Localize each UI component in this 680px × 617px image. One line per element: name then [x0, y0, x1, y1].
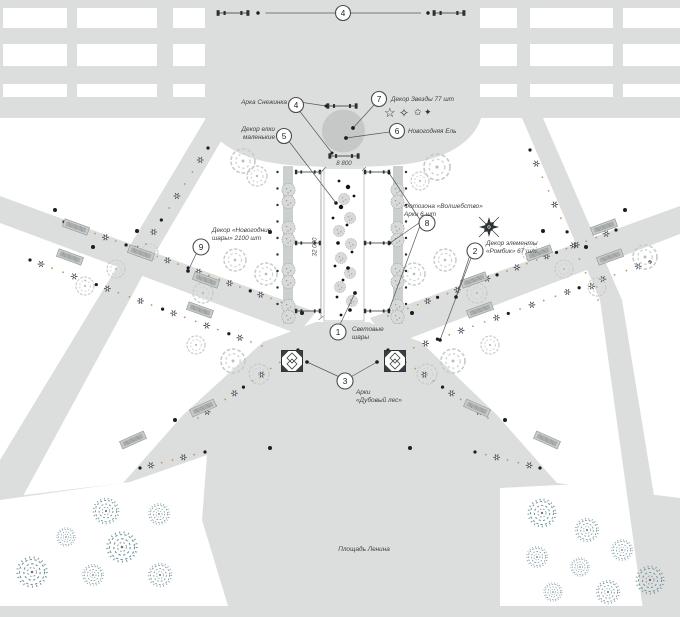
boulevard-tree-icon	[391, 310, 404, 323]
small-fir-icon	[344, 267, 355, 278]
callout-9: 9	[193, 239, 209, 255]
edge-dot	[276, 286, 278, 288]
garland-dot	[625, 270, 627, 272]
light-ball-dot	[353, 195, 356, 198]
garland-dot	[387, 315, 389, 317]
garland-dot	[224, 399, 226, 401]
callout-6-number: 6	[395, 127, 400, 136]
marker-dot	[503, 418, 507, 422]
garland-dot	[184, 316, 186, 318]
light-ball-dot	[336, 241, 340, 245]
garland-dot	[519, 308, 521, 310]
garland-dot	[407, 308, 409, 310]
label-photozone-1: Фотозона «Волшебство»	[404, 202, 483, 210]
marker-dot	[623, 208, 627, 212]
small-fir-icon	[338, 193, 349, 204]
boulevard-tree-icon	[282, 195, 295, 208]
garland-node-dot	[528, 148, 531, 151]
small-fir-icon	[333, 225, 344, 236]
garland-node-dot	[555, 251, 558, 254]
light-ball-dot	[342, 279, 345, 282]
garland-node-dot	[473, 450, 476, 453]
garland-dot	[579, 258, 581, 260]
edge-dot	[405, 286, 407, 288]
callout-6: 6	[390, 124, 405, 139]
garland-node-dot	[203, 450, 206, 453]
label-small-trees-1: Декор елки	[241, 126, 276, 133]
edge-dot	[276, 171, 278, 173]
label-small-trees-2: маленькие	[243, 134, 275, 141]
label-rhomb-1: Декор элементы	[485, 240, 538, 247]
garland-node-dot	[95, 283, 98, 286]
garland-dot	[485, 454, 487, 456]
edge-dot	[405, 187, 407, 189]
sparkle-outline-icon: ✧	[399, 106, 409, 120]
garland-dot	[117, 292, 119, 294]
garland-dot	[506, 270, 508, 272]
garland-dot	[270, 298, 272, 300]
callout-3: 3	[337, 373, 353, 389]
garland-dot	[217, 329, 219, 331]
callout-8-number: 8	[425, 219, 430, 228]
star-small-icon: ✩	[414, 107, 422, 117]
edge-dot	[276, 253, 278, 255]
garland-node-dot	[538, 466, 541, 469]
light-ball-dot	[332, 217, 335, 220]
garland-node-dot	[28, 258, 31, 261]
boulevard-tree-icon	[282, 263, 295, 276]
label-stars-decor: Декор Звезды 77 шт	[390, 95, 455, 103]
dim-width-label: 8 800	[336, 160, 352, 167]
label-new-year-tree: Новогодняя Ель	[408, 127, 456, 135]
marker-dot	[53, 208, 57, 212]
label-light-balls-2: шары	[352, 334, 369, 341]
rhomb-ornament-icon	[479, 217, 499, 237]
garland-node-dot	[227, 332, 230, 335]
edge-dot	[405, 303, 407, 305]
edge-dot	[405, 220, 407, 222]
boulevard-tree-icon	[391, 233, 404, 246]
garland-dot	[566, 248, 568, 250]
garland-dot	[62, 271, 64, 273]
garland-dot	[448, 334, 450, 336]
garland-dot	[192, 171, 194, 173]
callout-7-number: 7	[377, 95, 382, 104]
garland-dot	[280, 301, 282, 303]
garland-dot	[197, 417, 199, 419]
garland-dot	[279, 361, 281, 363]
callout-1-number: 1	[336, 328, 341, 337]
garland-node-dot	[242, 385, 245, 388]
garland-node-dot	[249, 289, 252, 292]
edge-dot	[405, 270, 407, 272]
garland-dot	[555, 295, 557, 297]
garland-node-dot	[124, 243, 127, 246]
dim-height-label: 32 000	[312, 237, 319, 256]
garland-dot	[548, 190, 550, 192]
light-ball-dot	[346, 266, 350, 270]
small-fir-icon	[335, 252, 346, 263]
site-plan-canvas: 8 800 32 000 4 4	[0, 0, 680, 617]
new-year-tree-crown	[322, 110, 365, 153]
label-light-balls-1: Световые	[352, 326, 384, 333]
garland-node-dot	[441, 385, 444, 388]
small-fir-icon	[346, 295, 357, 306]
label-photozone-2: Арки 6 шт	[403, 211, 437, 218]
label-balls-2: шары» 2100 шт	[212, 235, 262, 242]
oak-forest-arch-right	[385, 351, 406, 372]
garland-dot	[129, 296, 131, 298]
garland-dot	[484, 321, 486, 323]
callout-4-top-number: 4	[341, 9, 346, 18]
garland-dot	[597, 299, 599, 301]
edge-dot	[276, 220, 278, 222]
garland-dot	[239, 286, 241, 288]
garland-node-dot	[436, 296, 439, 299]
boulevard-lightballs-field	[324, 168, 364, 321]
garland-dot	[614, 274, 616, 276]
garland-dot	[177, 263, 179, 265]
garland-dot	[447, 293, 449, 295]
label-snowflake-arch: Арка Снежинка	[240, 99, 287, 106]
edge-dot	[276, 237, 278, 239]
callout-5-number: 5	[282, 132, 287, 141]
garland-dot	[261, 345, 263, 347]
oak-forest-arch-left	[282, 351, 303, 372]
small-fir-icon	[345, 238, 356, 249]
marker-dot	[541, 229, 545, 233]
marker-dot	[584, 245, 588, 249]
garland-dot	[417, 304, 419, 306]
light-ball-dot	[340, 314, 343, 317]
callout-9-number: 9	[199, 243, 204, 252]
garland-dot	[507, 459, 509, 461]
edge-dot	[405, 253, 407, 255]
marker-dot	[408, 446, 412, 450]
boulevard-tree-icon	[391, 221, 404, 234]
garland-dot	[472, 325, 474, 327]
callout-2-number: 2	[473, 247, 478, 256]
garland-dot	[460, 399, 462, 401]
callout-4: 4	[289, 98, 304, 113]
callout-2: 2	[467, 243, 483, 259]
garland-node-dot	[614, 228, 617, 231]
garland-dot	[517, 462, 519, 464]
boulevard-tree-icon	[282, 183, 295, 196]
marker-dot	[173, 418, 177, 422]
light-ball-dot	[351, 251, 354, 254]
garland-dot	[193, 454, 195, 456]
edge-dot	[276, 303, 278, 305]
callout-4-number: 4	[294, 101, 299, 110]
garland-dot	[94, 233, 96, 235]
garland-dot	[184, 183, 186, 185]
garland-node-dot	[578, 286, 581, 289]
callout-4-top: 4	[336, 6, 351, 21]
callout-5: 5	[277, 129, 292, 144]
garland-dot	[115, 240, 117, 242]
label-lenin-square: Площадь Ленина	[338, 545, 390, 553]
edge-dot	[276, 204, 278, 206]
light-ball-dot	[348, 308, 352, 312]
edge-dot	[276, 187, 278, 189]
garland-node-dot	[138, 466, 141, 469]
label-oak-forest-1: Арки	[355, 389, 371, 396]
small-fir-icon	[344, 212, 355, 223]
light-ball-dot	[346, 185, 350, 189]
marker-dot	[91, 245, 95, 249]
marker-dot	[268, 446, 272, 450]
label-rhomb-2: «Ромбик» 67 шт	[486, 247, 537, 255]
light-ball-dot	[339, 205, 343, 209]
edge-dot	[405, 237, 407, 239]
edge-dot	[405, 171, 407, 173]
garland-dot	[526, 263, 528, 265]
marker-dot	[410, 311, 414, 315]
garland-node-dot	[565, 230, 568, 233]
garland-dot	[195, 321, 197, 323]
garland-node-dot	[507, 312, 510, 315]
light-ball-dot	[334, 265, 337, 268]
star-outline-icon: ☆	[384, 105, 396, 120]
garland-node-dot	[495, 273, 498, 276]
garland-dot	[161, 462, 163, 464]
marker-dot	[135, 229, 139, 233]
light-ball-dot	[346, 224, 349, 227]
garland-dot	[585, 240, 587, 242]
small-fir-icon	[334, 281, 345, 292]
callout-1: 1	[330, 324, 346, 340]
sparkle-small-icon: ✦	[424, 107, 432, 117]
callout-3-number: 3	[343, 377, 348, 386]
garland-dot	[585, 272, 587, 274]
boulevard-tree-icon	[282, 221, 295, 234]
label-oak-forest-2: «Дубовый лес»	[356, 396, 402, 404]
boulevard-tree-icon	[282, 275, 295, 288]
garland-dot	[168, 207, 170, 209]
decoration-site-plan: 8 800 32 000 4 4	[0, 0, 680, 617]
garland-dot	[270, 368, 272, 370]
label-balls-1: Декор «Новогодние	[211, 226, 272, 234]
garland-dot	[51, 267, 53, 269]
garland-dot	[541, 176, 543, 178]
boulevard-tree-icon	[282, 310, 295, 323]
garland-dot	[413, 347, 415, 349]
garland-dot	[172, 459, 174, 461]
garland-node-dot	[206, 146, 209, 149]
garland-node-dot	[161, 308, 164, 311]
garland-dot	[250, 341, 252, 343]
garland-dot	[595, 237, 597, 239]
boulevard-tree-icon	[282, 233, 295, 246]
garland-dot	[414, 368, 416, 370]
garland-node-dot	[160, 218, 163, 221]
garland-dot	[560, 217, 562, 219]
garland-dot	[536, 259, 538, 261]
light-ball-dot	[338, 180, 341, 183]
light-ball-dot	[336, 296, 339, 299]
garland-dot	[543, 300, 545, 302]
edge-dot	[276, 270, 278, 272]
garland-dot	[151, 304, 153, 306]
boulevard-tree-icon	[391, 195, 404, 208]
